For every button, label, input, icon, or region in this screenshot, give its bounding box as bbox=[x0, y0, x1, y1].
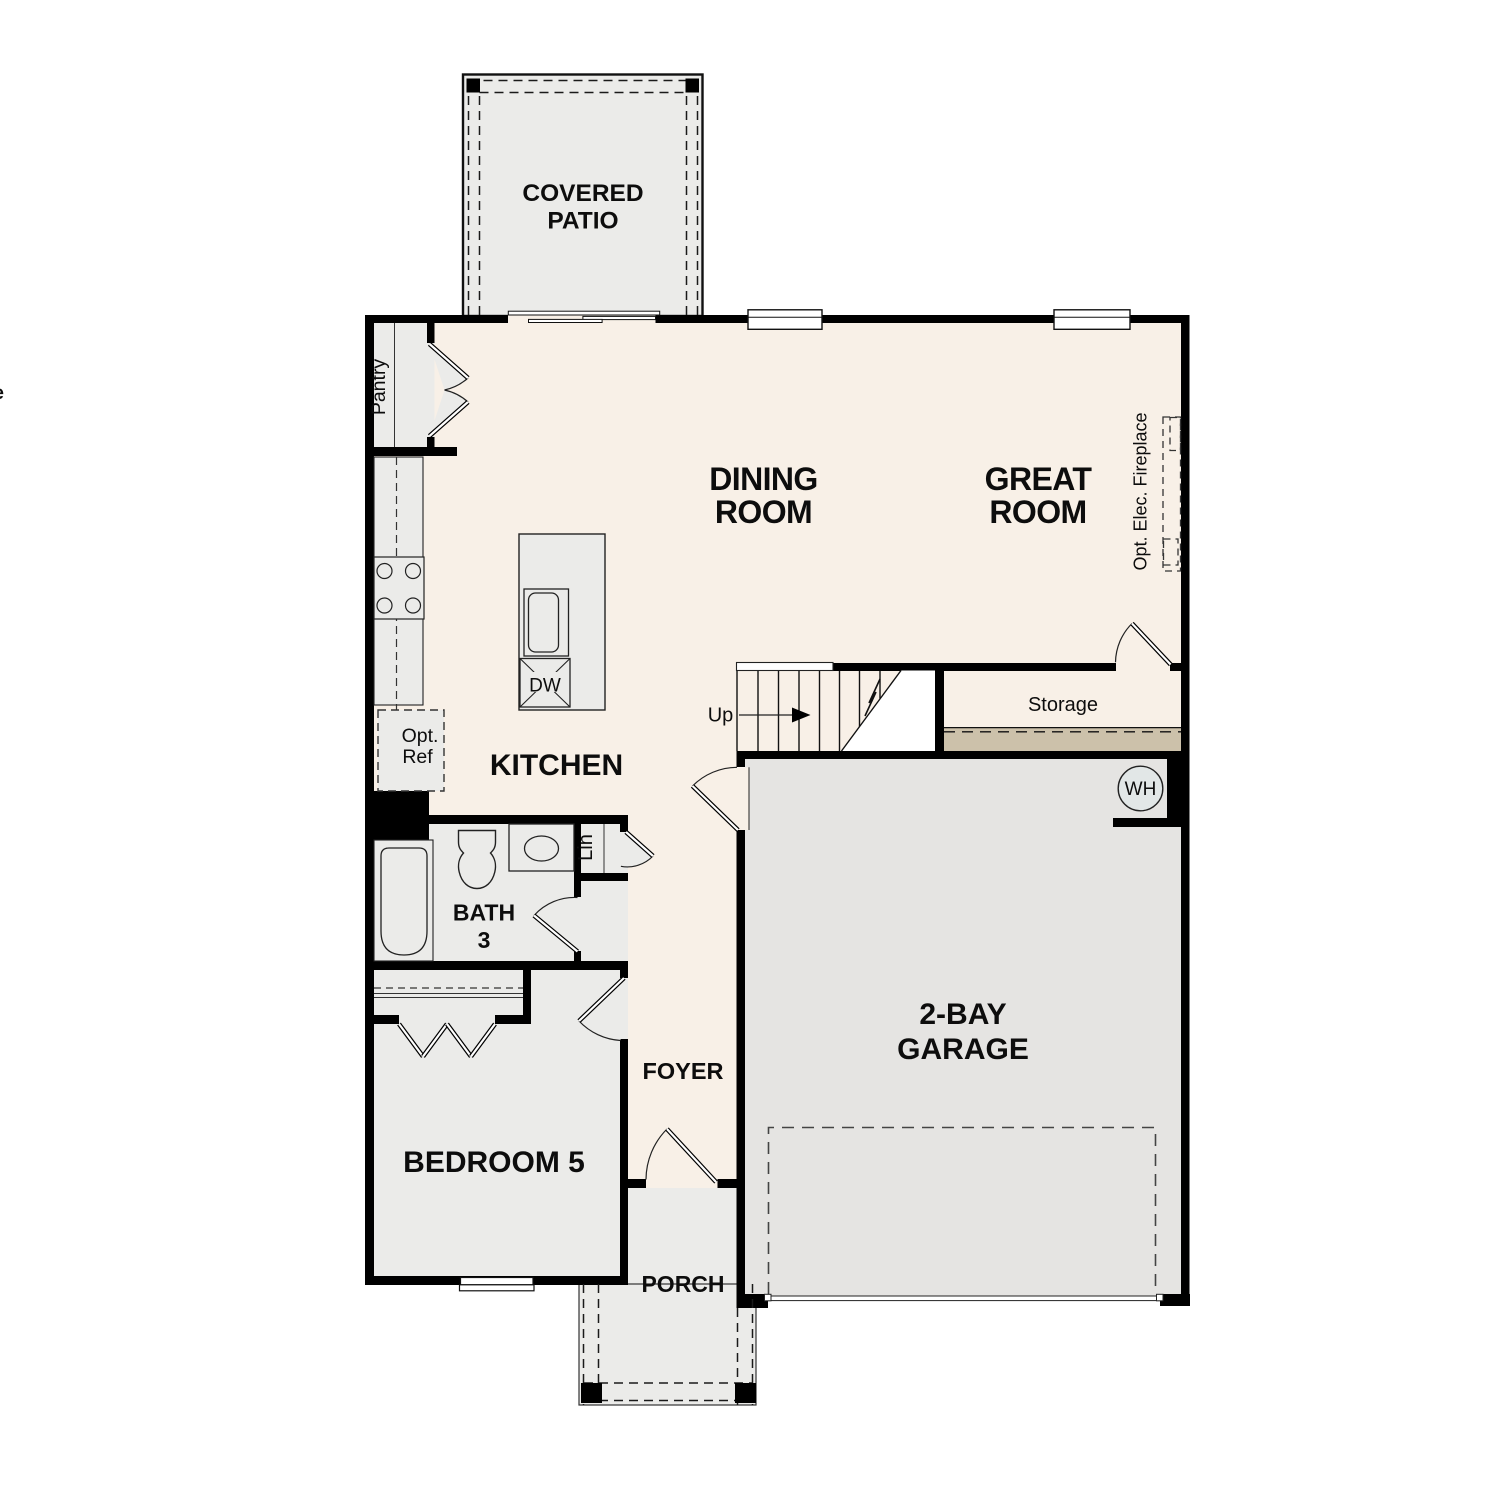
svg-text:KITCHEN: KITCHEN bbox=[490, 749, 623, 782]
svg-text:DW: DW bbox=[529, 676, 561, 697]
svg-text:GREAT: GREAT bbox=[985, 461, 1093, 497]
svg-text:GARAGE: GARAGE bbox=[897, 1033, 1029, 1066]
svg-text:WH: WH bbox=[1125, 779, 1157, 800]
svg-text:Opt.: Opt. bbox=[402, 725, 439, 747]
svg-text:FOYER: FOYER bbox=[643, 1058, 724, 1084]
svg-text:Lin: Lin bbox=[575, 834, 597, 861]
svg-text:ROOM: ROOM bbox=[989, 494, 1086, 530]
svg-text:Ref: Ref bbox=[402, 746, 433, 768]
svg-text:Pantry: Pantry bbox=[368, 359, 390, 416]
svg-text:DINING: DINING bbox=[709, 461, 817, 497]
svg-text:Opt. Elec. Fireplace: Opt. Elec. Fireplace bbox=[1131, 412, 1151, 570]
svg-text:Storage: Storage bbox=[1028, 694, 1098, 716]
svg-text:BATH: BATH bbox=[453, 900, 515, 926]
svg-text:PATIO: PATIO bbox=[547, 208, 618, 235]
svg-text:COVERED: COVERED bbox=[522, 180, 643, 207]
svg-text:ROOM: ROOM bbox=[715, 494, 812, 530]
svg-text:3: 3 bbox=[478, 927, 491, 953]
svg-text:2-BAY: 2-BAY bbox=[919, 998, 1006, 1031]
svg-text:Up: Up bbox=[708, 705, 734, 727]
svg-text:PORCH: PORCH bbox=[641, 1271, 724, 1297]
svg-text:e: e bbox=[0, 383, 4, 404]
svg-text:BEDROOM 5: BEDROOM 5 bbox=[403, 1146, 585, 1179]
